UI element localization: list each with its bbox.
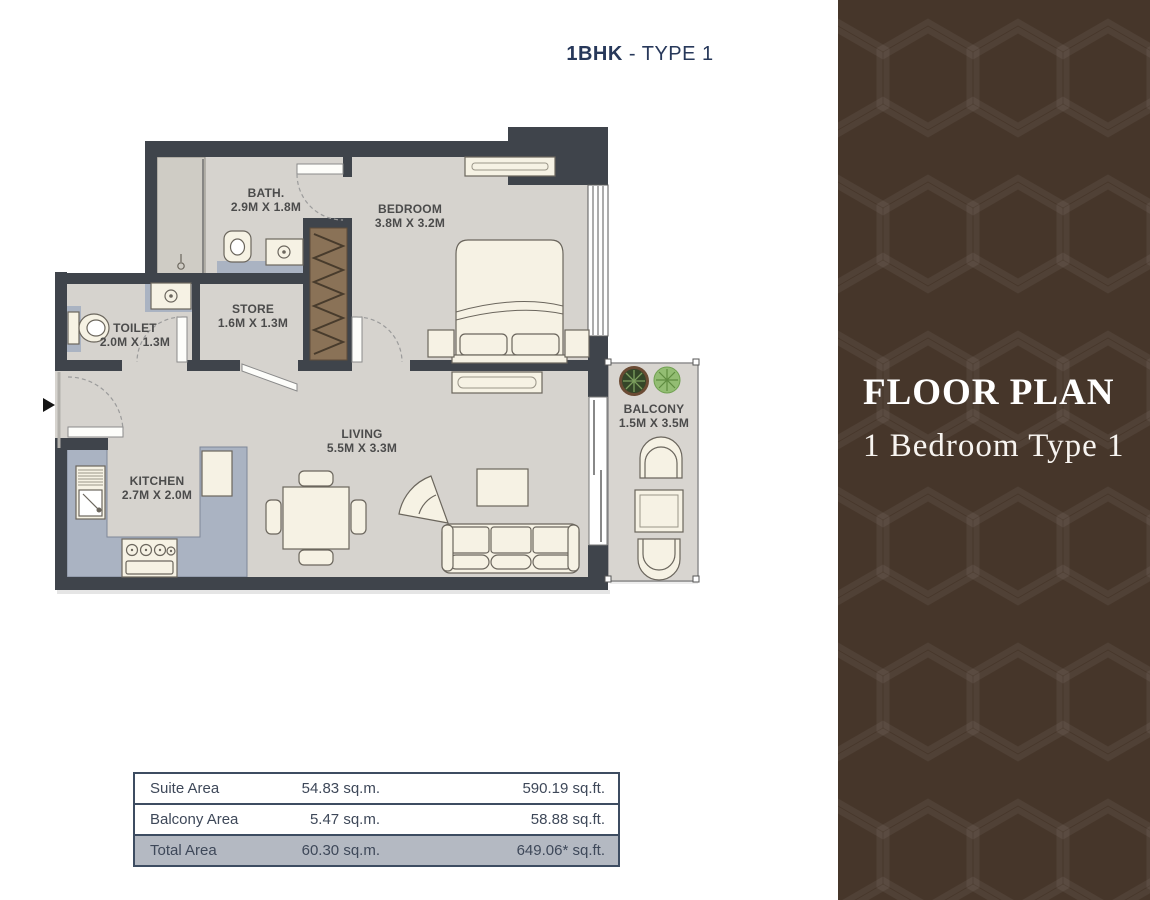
room-label-kitchen: KITCHEN 2.7M X 2.0M <box>92 474 222 502</box>
sidebar: FLOOR PLAN 1 Bedroom Type 1 <box>838 0 1150 900</box>
row-label: Balcony Area <box>135 811 285 828</box>
room-label-toilet: TOILET 2.0M X 1.3M <box>70 321 200 349</box>
row-sqm: 60.30 sq.m. <box>285 842 380 859</box>
sidebar-text: FLOOR PLAN 1 Bedroom Type 1 <box>863 372 1124 466</box>
table-row-balcony: Balcony Area 5.47 sq.m. 58.88 sq.ft. <box>135 803 618 834</box>
room-label-bath: BATH. 2.9M X 1.8M <box>201 186 331 214</box>
page: 1BHK - TYPE 1 <box>0 0 1150 900</box>
table-row-total: Total Area 60.30 sq.m. 649.06* sq.ft. <box>135 834 618 865</box>
row-sqft: 649.06* sq.ft. <box>380 842 618 859</box>
row-sqm: 54.83 sq.m. <box>285 780 380 797</box>
balcony-furniture <box>635 437 683 580</box>
floor-plan: BATH. 2.9M X 1.8M BEDROOM 3.8M X 3.2M TO… <box>0 0 838 900</box>
row-label: Suite Area <box>135 780 285 797</box>
sidebar-heading: FLOOR PLAN <box>863 372 1124 414</box>
table-row-suite: Suite Area 54.83 sq.m. 590.19 sq.ft. <box>135 774 618 803</box>
room-label-living: LIVING 5.5M X 3.3M <box>297 427 427 455</box>
row-label: Total Area <box>135 842 285 859</box>
row-sqm: 5.47 sq.m. <box>285 811 380 828</box>
sidebar-subheading: 1 Bedroom Type 1 <box>863 426 1124 466</box>
entry-arrow-icon <box>43 398 55 412</box>
row-sqft: 590.19 sq.ft. <box>380 780 618 797</box>
room-label-bedroom: BEDROOM 3.8M X 3.2M <box>345 202 475 230</box>
wardrobe <box>310 228 347 360</box>
room-label-store: STORE 1.6M X 1.3M <box>188 302 318 330</box>
area-table: Suite Area 54.83 sq.m. 590.19 sq.ft. Bal… <box>133 772 620 867</box>
row-sqft: 58.88 sq.ft. <box>380 811 618 828</box>
bedroom-window <box>588 185 608 336</box>
room-label-balcony: BALCONY 1.5M X 3.5M <box>589 402 719 430</box>
